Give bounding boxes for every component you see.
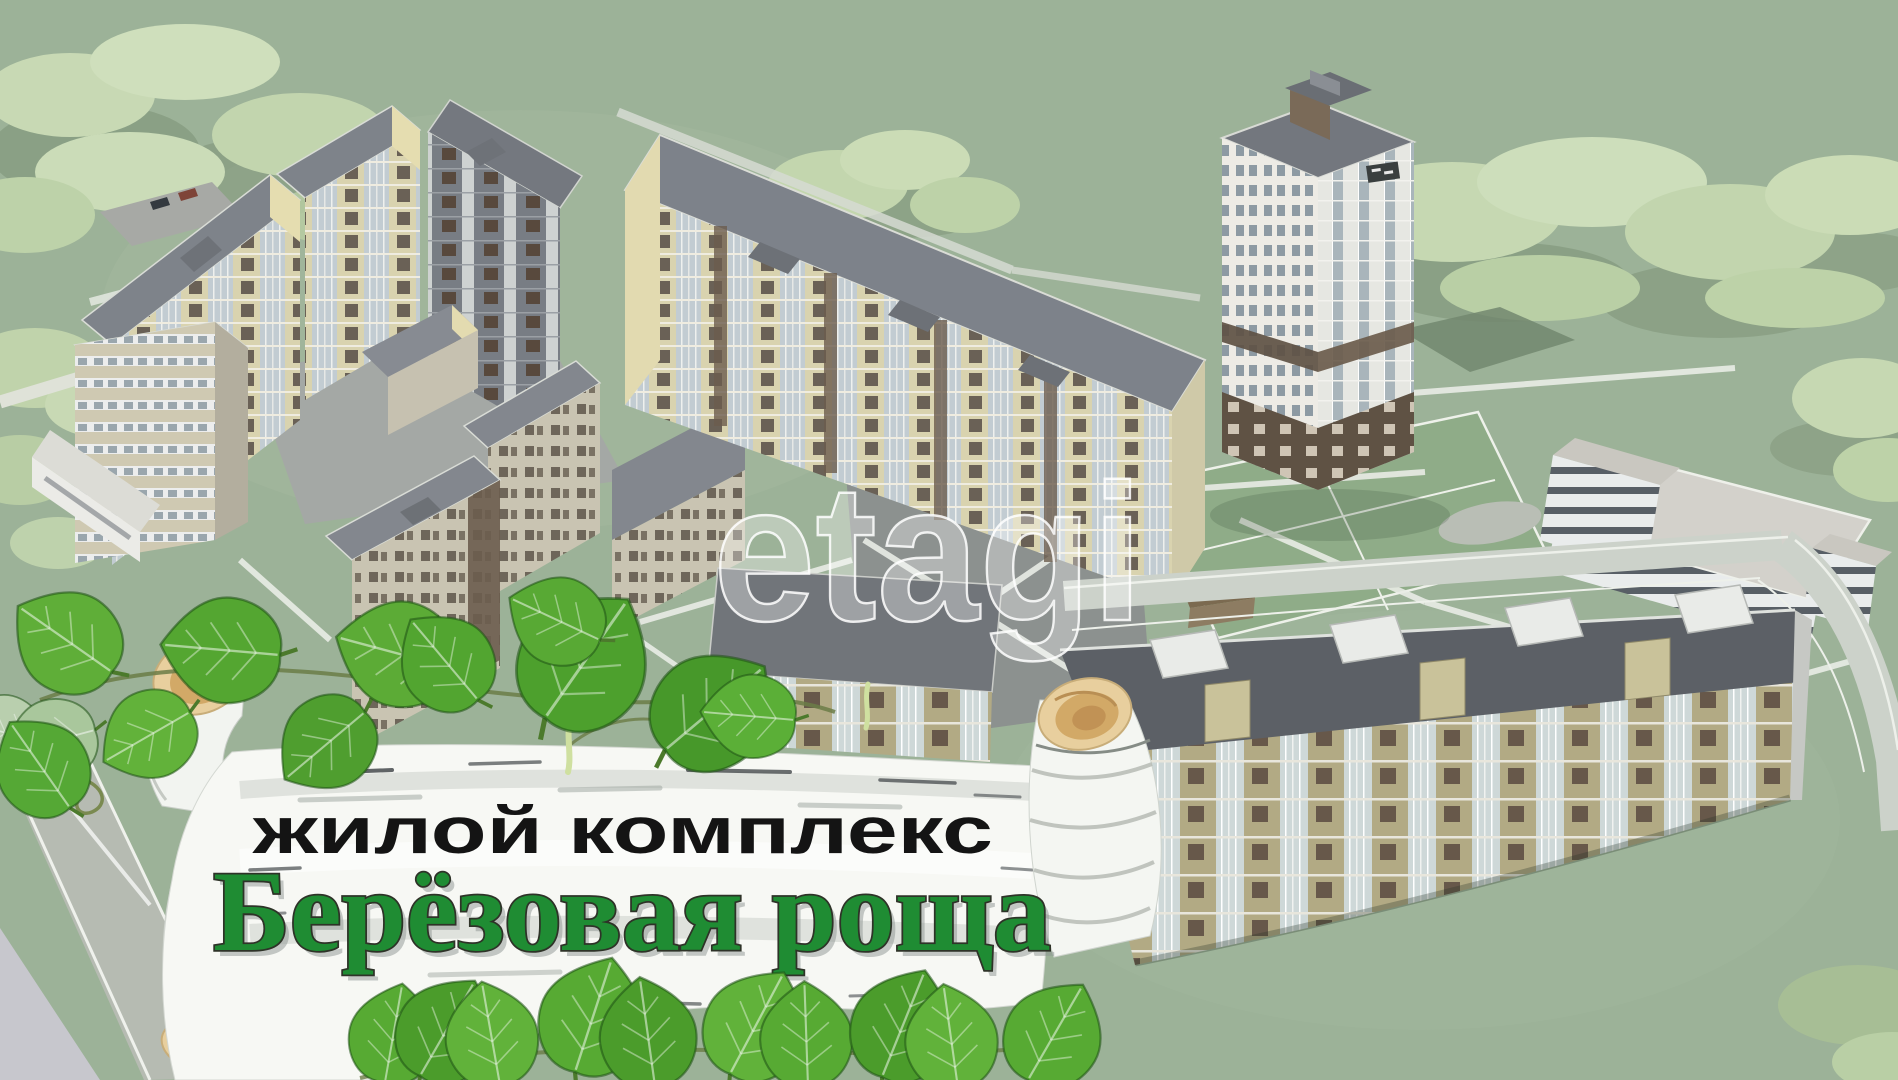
aerial-render-image: etagi [0,0,1898,1080]
birch-catkin [866,684,868,728]
tower-shadow [1210,489,1450,541]
scene-canvas: etagi [0,0,1898,1080]
watermark-text: etagi [713,444,1143,662]
banner-title: Берёзовая роща [213,848,1051,975]
